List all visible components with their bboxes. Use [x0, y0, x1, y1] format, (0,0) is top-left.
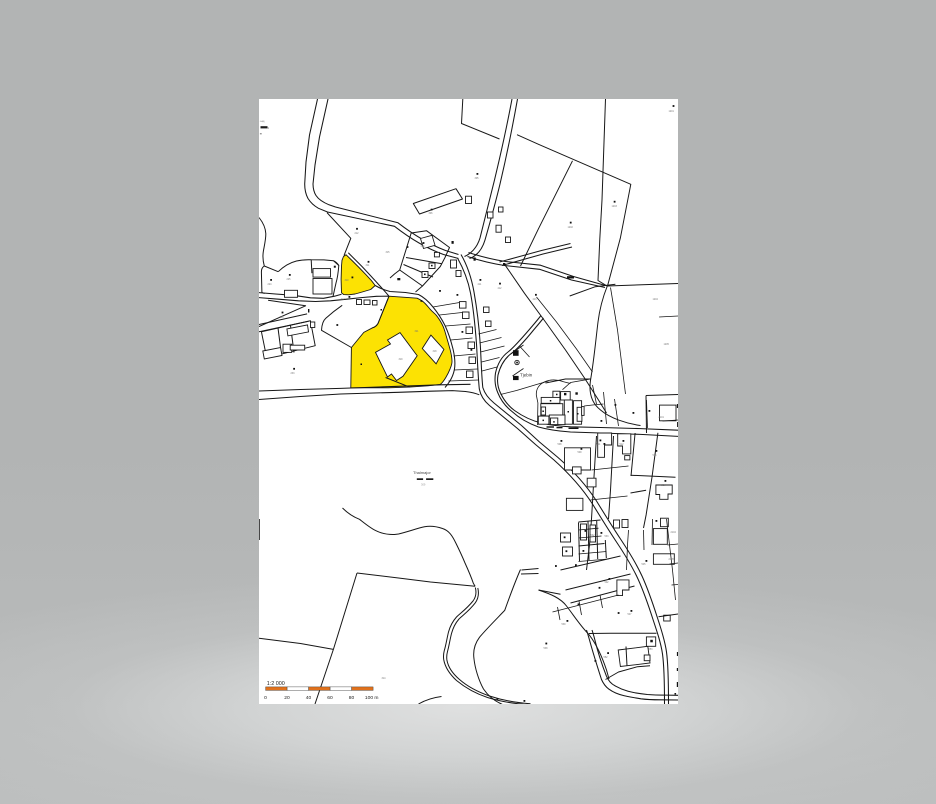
- svg-text:230: 230: [279, 316, 284, 319]
- svg-text:212: 212: [354, 232, 359, 235]
- svg-text:542: 542: [604, 581, 609, 584]
- svg-text:306: 306: [428, 212, 433, 215]
- svg-text:•›ад: •›ад: [259, 119, 264, 123]
- svg-text:319: 319: [398, 358, 403, 361]
- svg-text:547: 547: [627, 613, 632, 616]
- svg-text:515: 515: [652, 454, 657, 457]
- svg-text:315: 315: [385, 251, 390, 254]
- svg-text:509: 509: [577, 451, 582, 454]
- svg-text:2104: 2104: [670, 531, 676, 534]
- svg-text:538: 538: [543, 647, 548, 650]
- svg-text:305: 305: [474, 177, 479, 180]
- svg-text:553: 553: [648, 648, 653, 651]
- svg-text:508: 508: [557, 443, 562, 446]
- svg-text:225: 225: [286, 278, 291, 281]
- svg-text:1205: 1205: [663, 343, 669, 346]
- svg-text:1:2 000: 1:2 000: [266, 681, 284, 687]
- svg-text:516: 516: [661, 484, 666, 487]
- svg-text:413: 413: [532, 298, 537, 301]
- svg-text:1201: 1201: [668, 110, 674, 113]
- svg-text:60: 60: [327, 695, 333, 701]
- svg-text:316: 316: [420, 245, 425, 248]
- svg-text:411: 411: [477, 283, 481, 286]
- svg-text:321: 321: [414, 330, 419, 333]
- svg-text:412: 412: [497, 287, 502, 290]
- svg-text:314: 314: [381, 677, 386, 680]
- svg-text:0: 0: [264, 695, 267, 701]
- svg-text:40: 40: [305, 695, 311, 701]
- svg-text:310: 310: [344, 279, 349, 282]
- svg-text:312: 312: [340, 298, 345, 301]
- svg-text:311: 311: [365, 264, 369, 267]
- svg-text:Tjebin: Tjebin: [520, 373, 533, 378]
- svg-text:545: 545: [641, 563, 646, 566]
- svg-text:309: 309: [421, 483, 426, 487]
- svg-text:533: 533: [604, 535, 609, 538]
- svg-text:224: 224: [267, 283, 272, 286]
- svg-text:318: 318: [432, 350, 437, 353]
- svg-text:233: 233: [290, 372, 295, 375]
- svg-text:512: 512: [619, 443, 624, 446]
- svg-text:2101: 2101: [658, 416, 664, 419]
- svg-text:511: 511: [596, 443, 600, 446]
- svg-text:100 m: 100 m: [364, 695, 378, 701]
- svg-text:2105: 2105: [668, 558, 674, 561]
- svg-text:1203: 1203: [611, 205, 617, 208]
- svg-text:1202: 1202: [567, 226, 573, 229]
- svg-text:1204: 1204: [652, 298, 658, 301]
- svg-text:80: 80: [348, 695, 354, 701]
- svg-text:552: 552: [603, 656, 608, 659]
- svg-text:532: 532: [590, 534, 595, 537]
- svg-text:539: 539: [561, 623, 566, 626]
- svg-text:20: 20: [284, 695, 290, 701]
- svg-text:Thalmajor: Thalmajor: [413, 470, 431, 475]
